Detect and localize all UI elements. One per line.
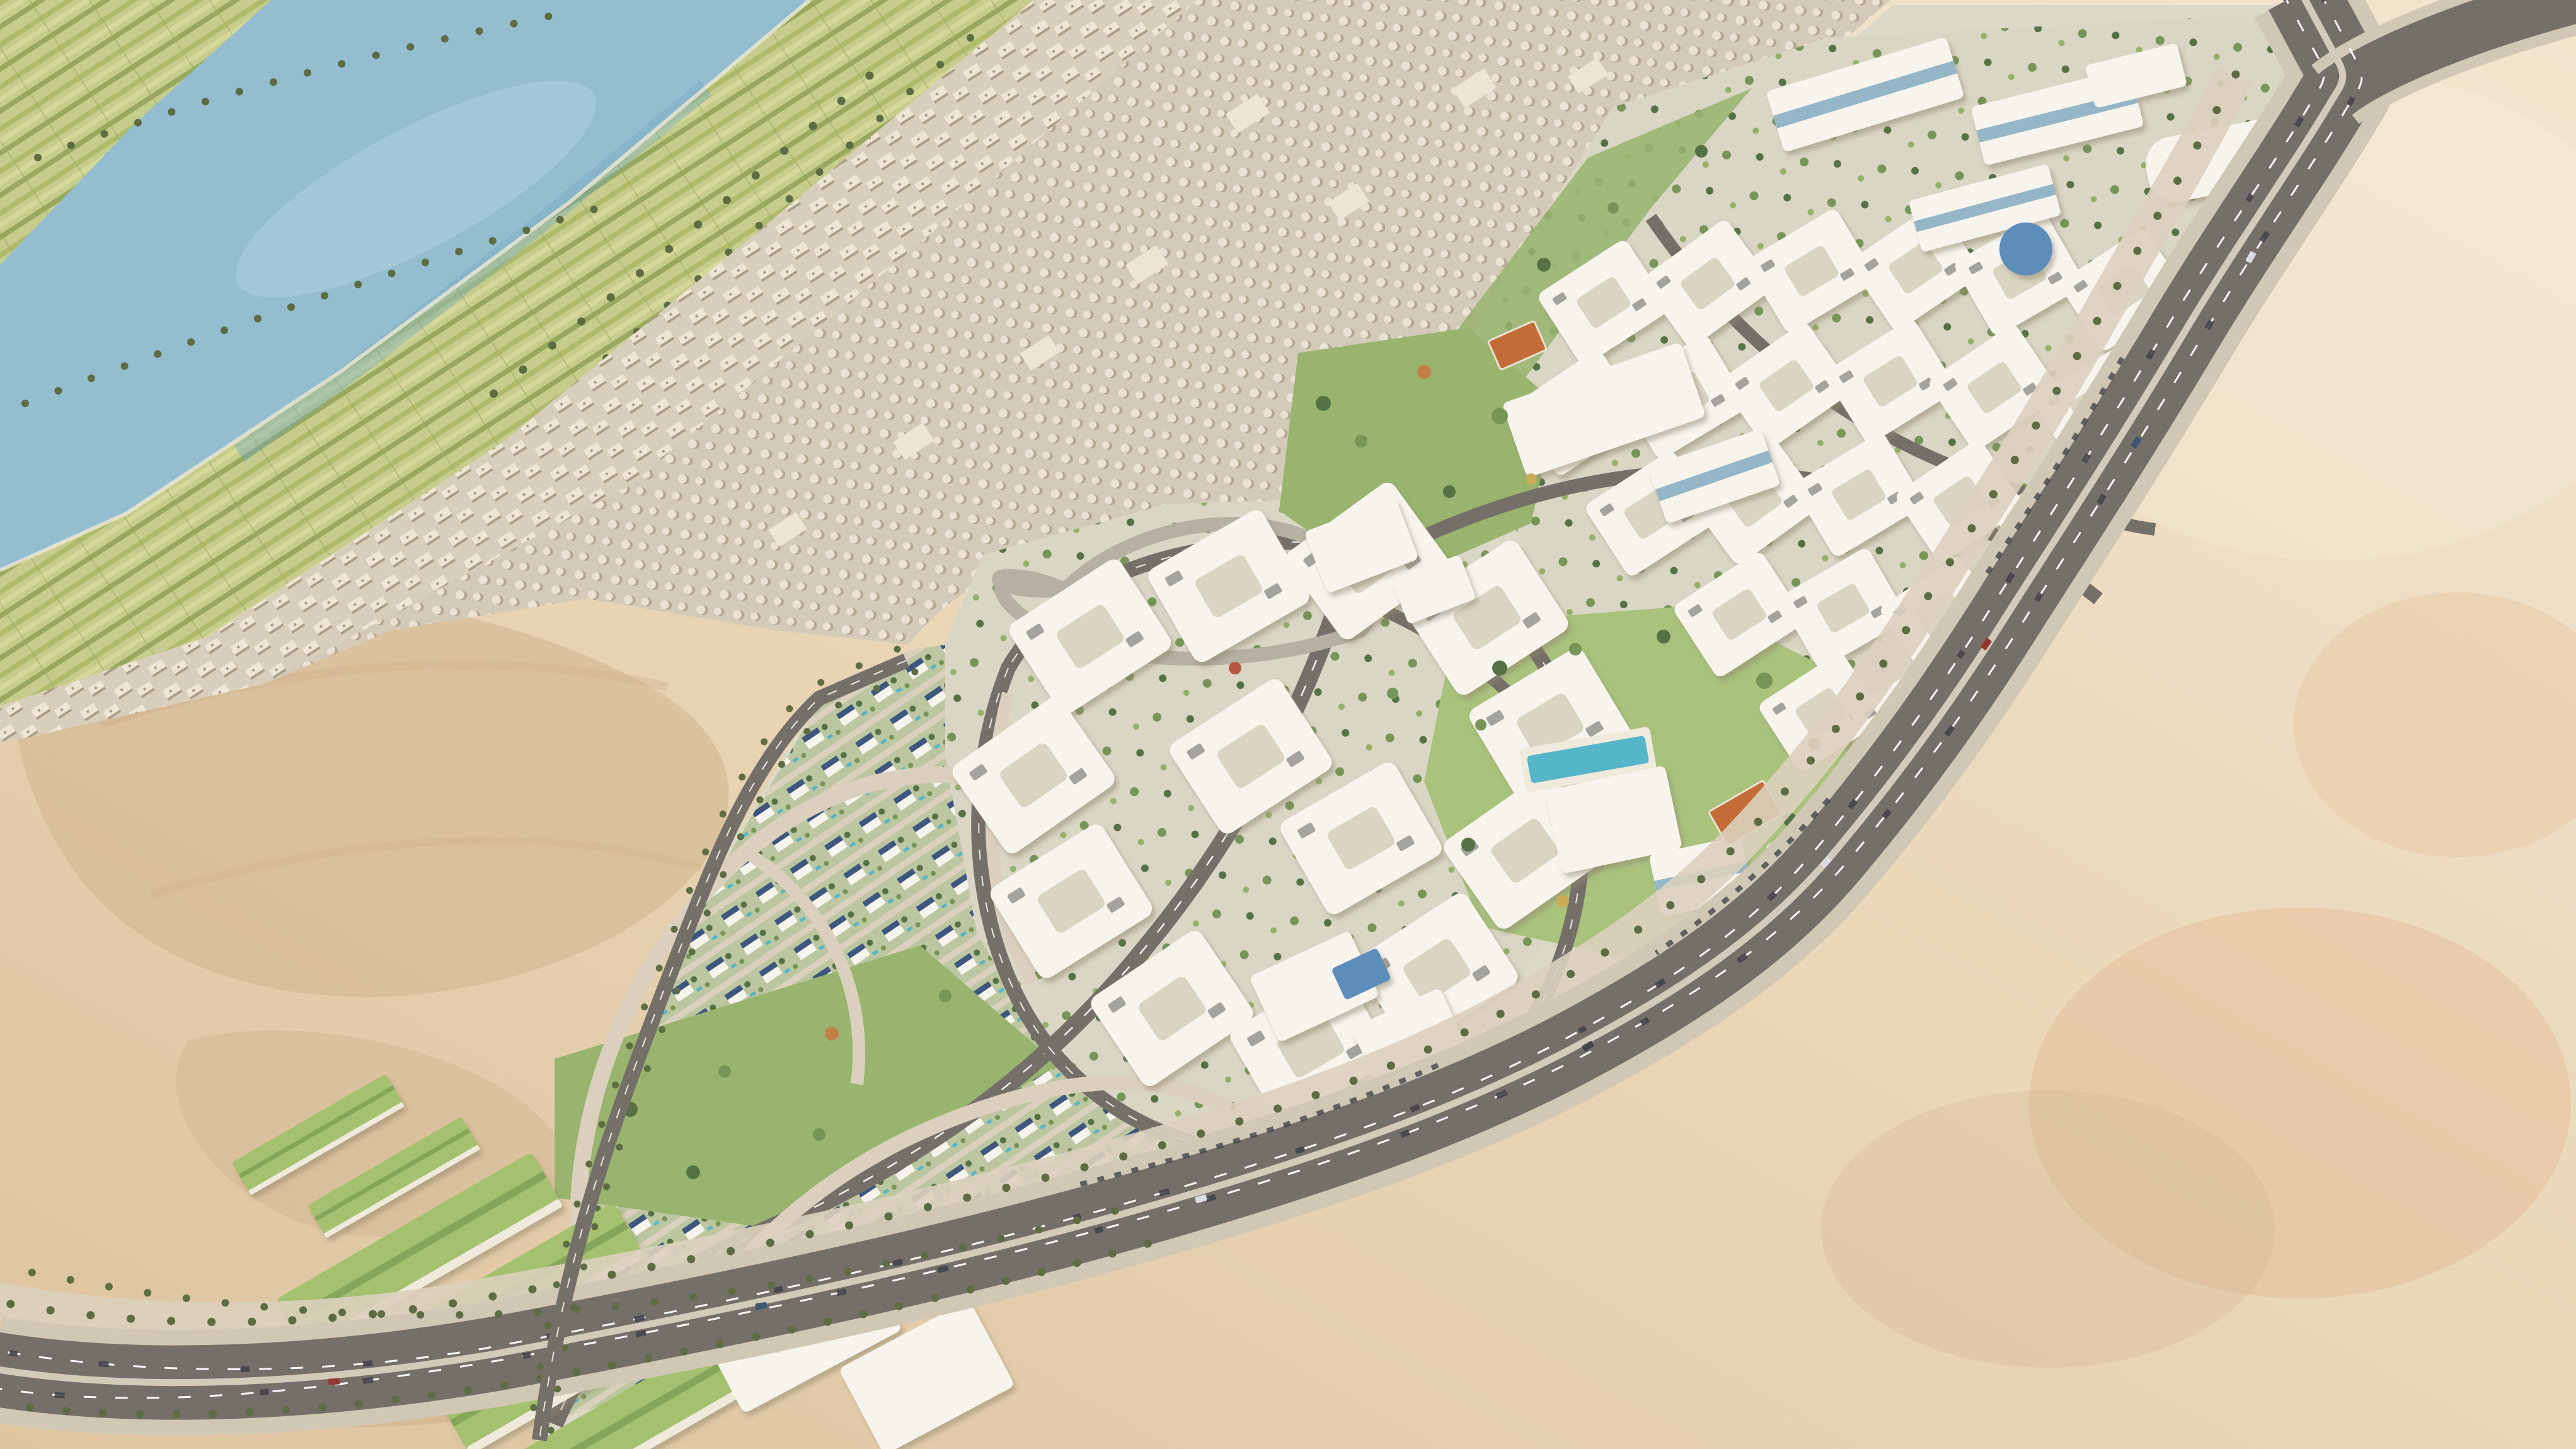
masterplan-rendering bbox=[0, 0, 2576, 1449]
aerial-rendering-canvas bbox=[0, 0, 2576, 1449]
atmosphere-overlay bbox=[0, 0, 2576, 1449]
